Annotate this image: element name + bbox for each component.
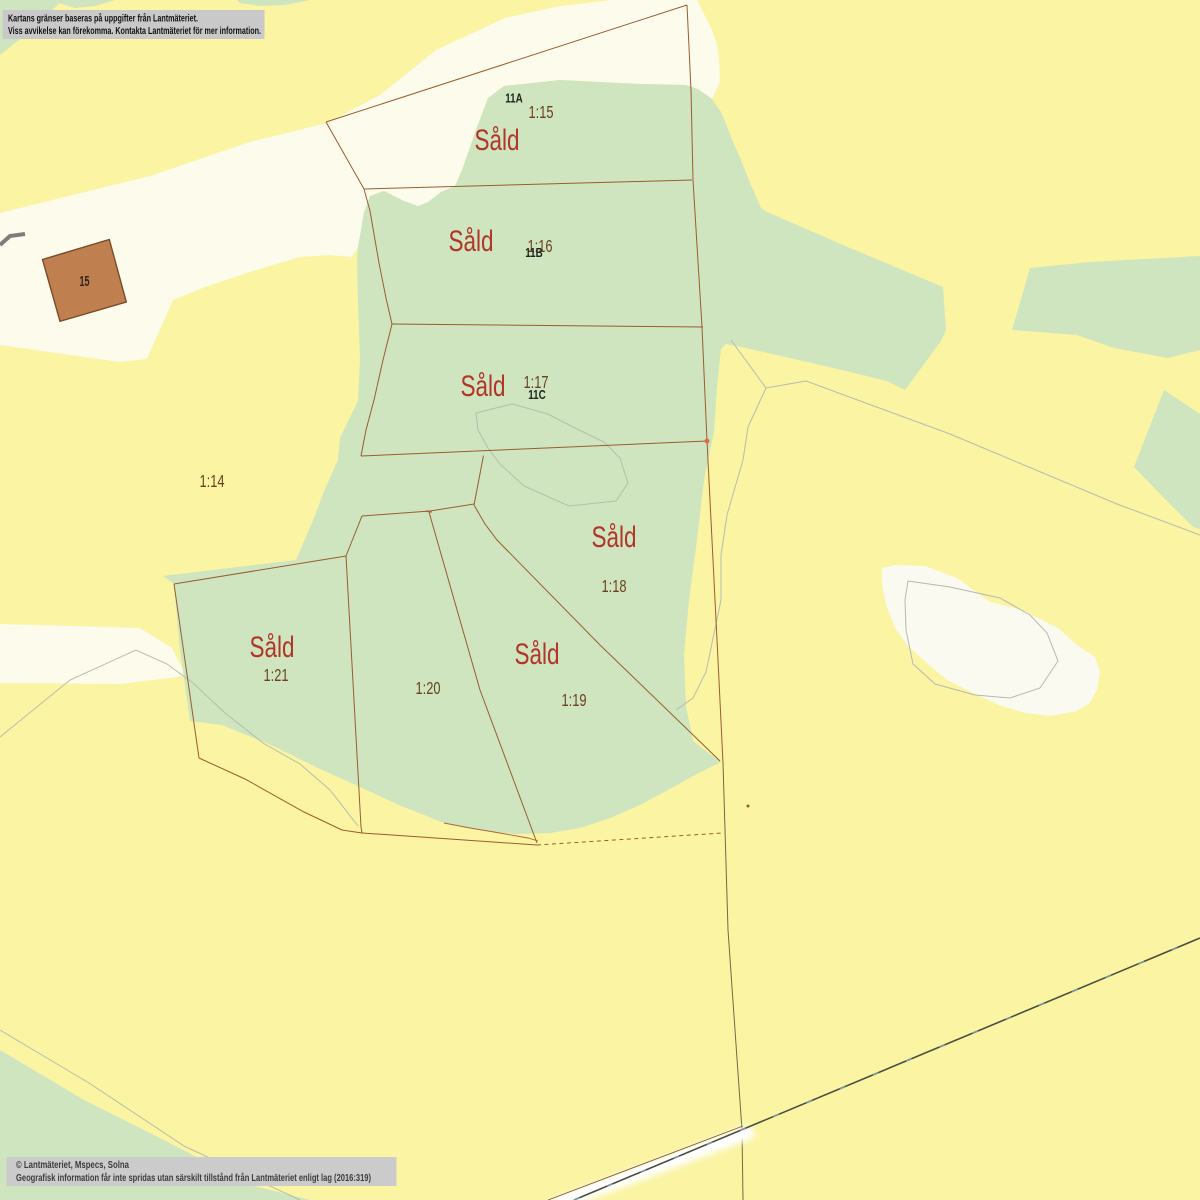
svg-text:1:14: 1:14 xyxy=(200,471,225,491)
svg-text:1:15: 1:15 xyxy=(529,102,554,122)
svg-text:Såld: Såld xyxy=(461,370,506,403)
svg-text:Kartans gränser baseras på upp: Kartans gränser baseras på uppgifter frå… xyxy=(8,13,198,25)
svg-text:11B: 11B xyxy=(525,246,543,260)
svg-text:Såld: Såld xyxy=(592,521,637,554)
svg-text:1:18: 1:18 xyxy=(602,576,627,596)
svg-text:11A: 11A xyxy=(505,92,523,106)
svg-text:1:19: 1:19 xyxy=(562,690,587,710)
svg-text:11C: 11C xyxy=(528,388,546,402)
svg-text:1:20: 1:20 xyxy=(416,678,441,698)
svg-text:Viss avvikelse kan förekomma.: Viss avvikelse kan förekomma. Kontakta L… xyxy=(8,25,261,37)
svg-text:15: 15 xyxy=(80,274,90,290)
svg-text:Såld: Såld xyxy=(475,124,520,157)
svg-text:Såld: Såld xyxy=(515,638,560,671)
svg-text:Såld: Såld xyxy=(449,225,494,258)
svg-text:© Lantmäteriet, Mspecs, Solna: © Lantmäteriet, Mspecs, Solna xyxy=(16,1159,129,1171)
svg-text:Geografisk information får int: Geografisk information får inte spridas … xyxy=(16,1172,371,1184)
svg-text:1:21: 1:21 xyxy=(264,665,289,685)
svg-text:Såld: Såld xyxy=(250,631,295,664)
